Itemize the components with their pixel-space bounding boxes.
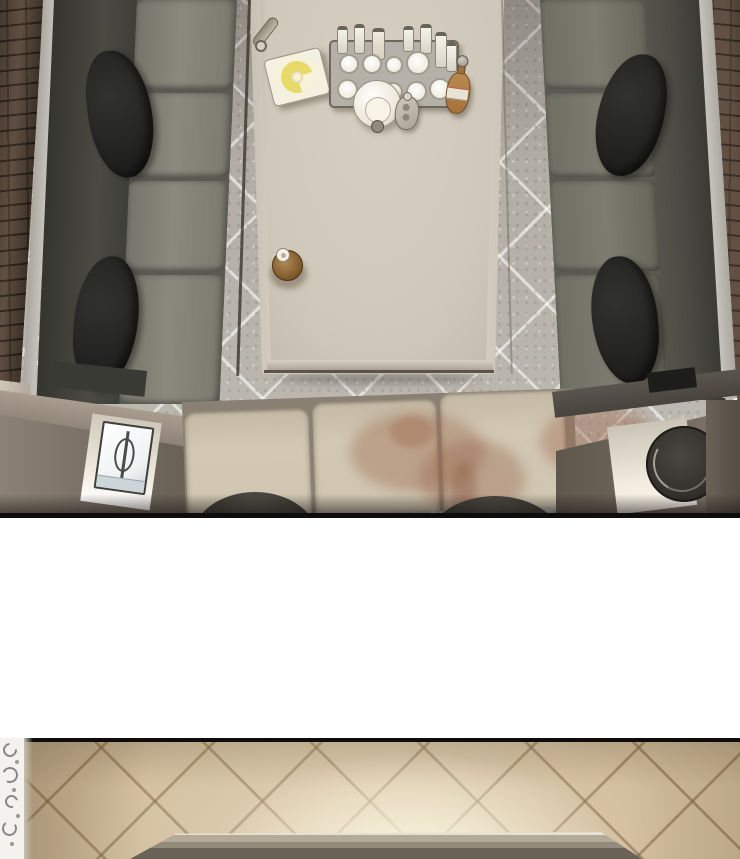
round-glass [362, 54, 382, 74]
ornament-dot [15, 760, 19, 764]
beer-bottle-cap [456, 54, 470, 68]
liquor-bottle [337, 26, 348, 54]
upper-panel [0, 0, 740, 513]
sofa-seats-left [119, 0, 237, 404]
comic-page [0, 0, 740, 859]
yellow-garnish [276, 56, 319, 99]
sofa-cushion [133, 0, 237, 89]
ornament-dot [10, 842, 14, 846]
round-glass [339, 54, 359, 74]
tissue-box [94, 421, 155, 496]
towel-ring [255, 40, 267, 52]
side-table-right [556, 366, 740, 513]
bowl-scoop [371, 120, 384, 133]
table-shadow [275, 374, 481, 384]
lounge-table [243, 0, 509, 382]
flask-detail [402, 114, 410, 122]
brown-bottle-cap-dot [281, 253, 286, 258]
table-bottom-line [264, 370, 494, 373]
sofa-cushion [125, 181, 229, 271]
sofa-cushion [549, 181, 662, 271]
scroll-ornament [0, 740, 20, 760]
panel-bottom-shadow [0, 494, 740, 513]
beer-bottle-body [443, 70, 473, 115]
liquor-bottle [403, 26, 414, 52]
ice-bowl [353, 80, 401, 128]
scroll-ornament [0, 765, 20, 786]
table-bottom-edge [267, 360, 493, 370]
ornament-dot [16, 814, 20, 818]
beer-bottle-label [446, 86, 468, 101]
ornament-dot [12, 788, 16, 792]
ornate-carved-column [0, 738, 24, 859]
wooden-table-edge [130, 832, 642, 859]
flask-cap [403, 92, 412, 101]
sofa-end-shadow [51, 361, 147, 397]
round-glass [385, 56, 403, 74]
flask-detail [402, 104, 410, 112]
spill-stain [390, 416, 434, 448]
scroll-ornament [1, 820, 18, 837]
round-glass [406, 51, 430, 75]
liquor-bottle [420, 24, 432, 54]
liquor-bottle [354, 24, 365, 54]
brown-bottle [265, 246, 311, 292]
lower-panel [0, 738, 740, 859]
panel-gap [0, 518, 740, 738]
scroll-ornament [3, 793, 21, 811]
column-edge-shadow [24, 738, 33, 859]
